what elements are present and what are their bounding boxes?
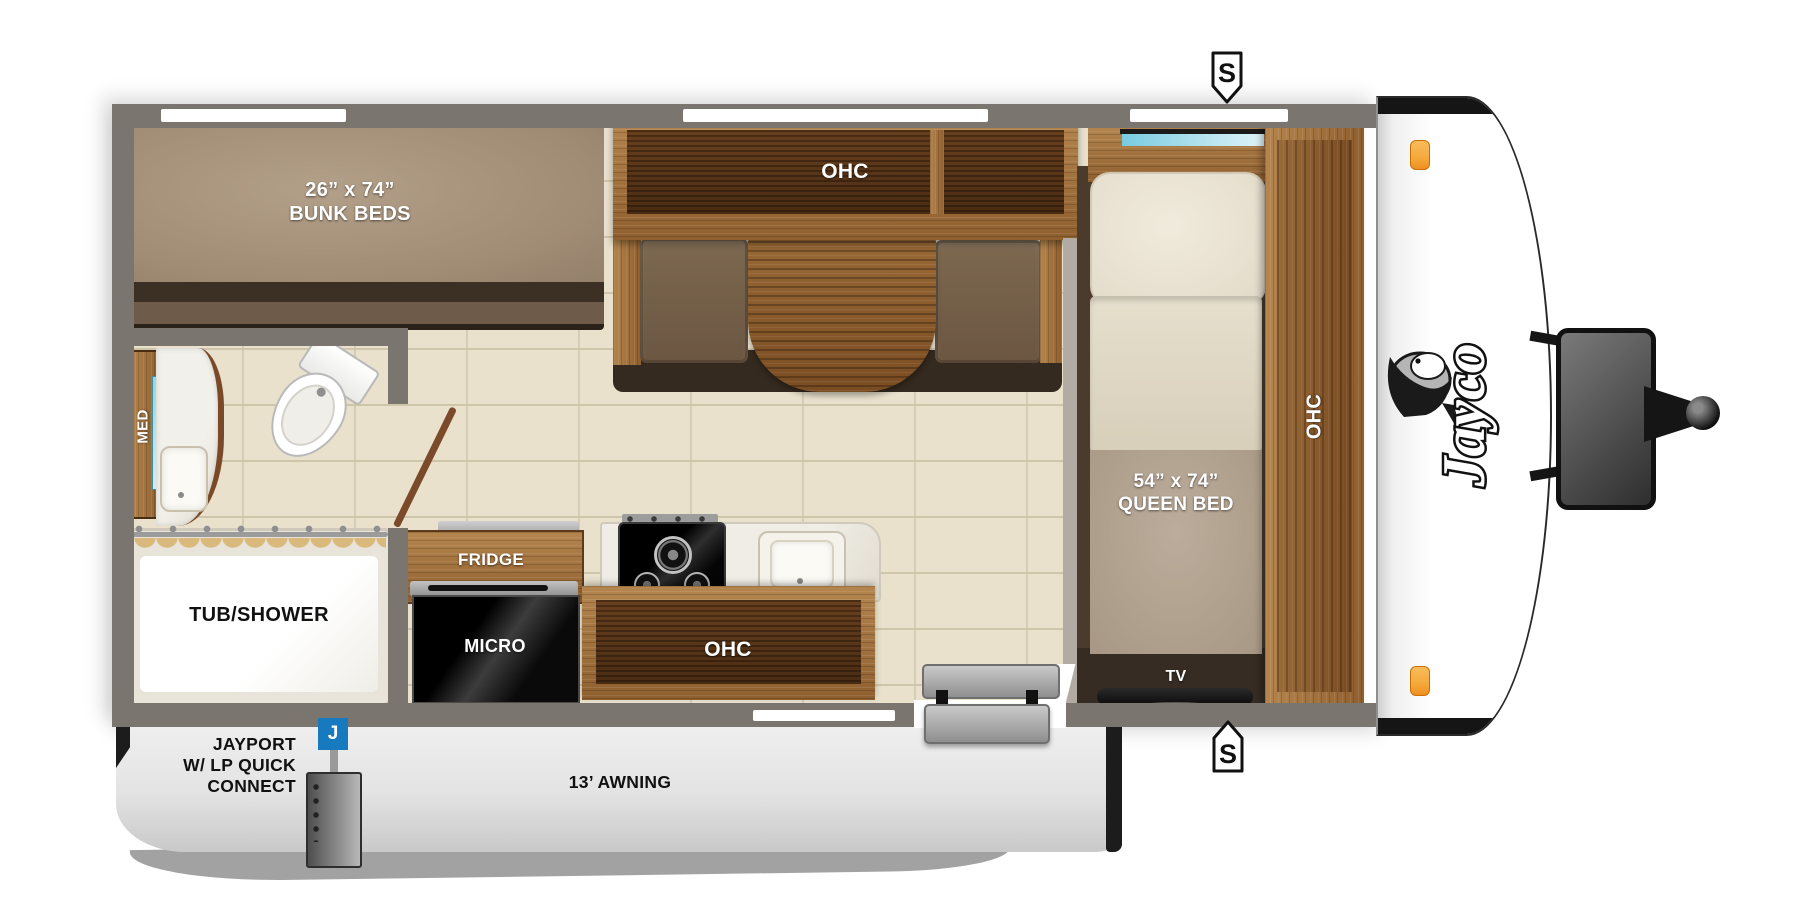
bed-head-window (1122, 134, 1264, 146)
kitchen-ohc-label: OHC (678, 638, 778, 662)
bath-sink-bowl (160, 446, 208, 512)
clearance-light-top (1410, 140, 1430, 170)
queen-bed-name: QUEEN BED (1076, 493, 1276, 516)
dinette-right-side-panel (1040, 240, 1062, 363)
dinette-left-bench-cushion (640, 238, 748, 363)
tub-shower-label: TUB/SHOWER (144, 604, 374, 627)
microwave-label: MICRO (420, 636, 570, 657)
hitch-ball (1686, 396, 1720, 430)
dinette-ohc-divider (930, 130, 944, 214)
fridge-label: FRIDGE (416, 550, 566, 570)
microwave-vent-slot (428, 585, 548, 591)
speaker-marker-top: S (1210, 50, 1244, 106)
tv-label: TV (1146, 668, 1206, 686)
window-top-3 (1130, 109, 1288, 122)
floorplan-canvas: 26” x 74” BUNK BEDS MED TUB/SHOWER OHC 5… (0, 0, 1800, 920)
med-cabinet-label: MED (135, 397, 152, 457)
clearance-light-bottom (1410, 666, 1430, 696)
window-top-2 (683, 109, 988, 122)
propane-battery-box (1556, 328, 1656, 510)
bunk-bed-label: 26” x 74” BUNK BEDS (230, 178, 470, 226)
jayco-logo: Jayco (1382, 265, 1542, 565)
jayport-text-line2: W/ LP QUICK (130, 755, 296, 776)
bunk-bed-base (120, 282, 604, 330)
speaker-marker-bottom: S (1211, 718, 1245, 774)
kitchen-faucet-dot (797, 578, 803, 584)
window-bottom (753, 710, 895, 721)
wall-left (112, 104, 134, 727)
stove-burner-large (654, 536, 692, 574)
jayport-marker-letter: J (328, 723, 339, 745)
jayco-logo-text: Jayco (1431, 343, 1497, 487)
jayport-text: JAYPORT W/ LP QUICK CONNECT (130, 734, 296, 797)
bedroom-ohc-label: OHC (1304, 384, 1327, 450)
jayport-stem (330, 750, 338, 774)
queen-bed-dim: 54” x 74” (1076, 470, 1276, 493)
wall-bath-jamb-bottom (388, 528, 408, 705)
dinette-ohc-label: OHC (795, 160, 895, 184)
jayport-text-line3: CONNECT (130, 776, 296, 797)
front-cap-top-trim (1378, 98, 1550, 114)
wall-bathroom-divider (112, 328, 408, 346)
bed-sheet (1090, 296, 1262, 454)
shower-curtain (134, 538, 386, 556)
window-top-1 (161, 109, 346, 122)
jayport-text-line1: JAYPORT (130, 734, 296, 755)
curtain-rod (132, 532, 388, 537)
dinette-right-bench-cushion (935, 240, 1042, 363)
jayport-marker: J (318, 718, 348, 750)
queen-bed-label: 54” x 74” QUEEN BED (1076, 470, 1276, 516)
bath-faucet-dot (178, 492, 184, 498)
entry-step-lower (924, 704, 1050, 744)
bunk-bed-dim: 26” x 74” (230, 178, 470, 202)
dinette-table (748, 232, 936, 392)
bed-pillow (1090, 172, 1266, 306)
speaker-marker-top-letter: S (1218, 58, 1236, 88)
front-cap-bottom-trim (1378, 718, 1550, 734)
awning-label: 13’ AWNING (520, 772, 720, 793)
wall-bath-jamb-top (388, 346, 408, 404)
dinette-left-side-panel (613, 240, 641, 365)
jayport-box-vents (312, 782, 320, 842)
awning-right-edge (1106, 722, 1122, 852)
speaker-marker-bottom-letter: S (1219, 739, 1237, 769)
bunk-bed-name: BUNK BEDS (230, 202, 470, 226)
